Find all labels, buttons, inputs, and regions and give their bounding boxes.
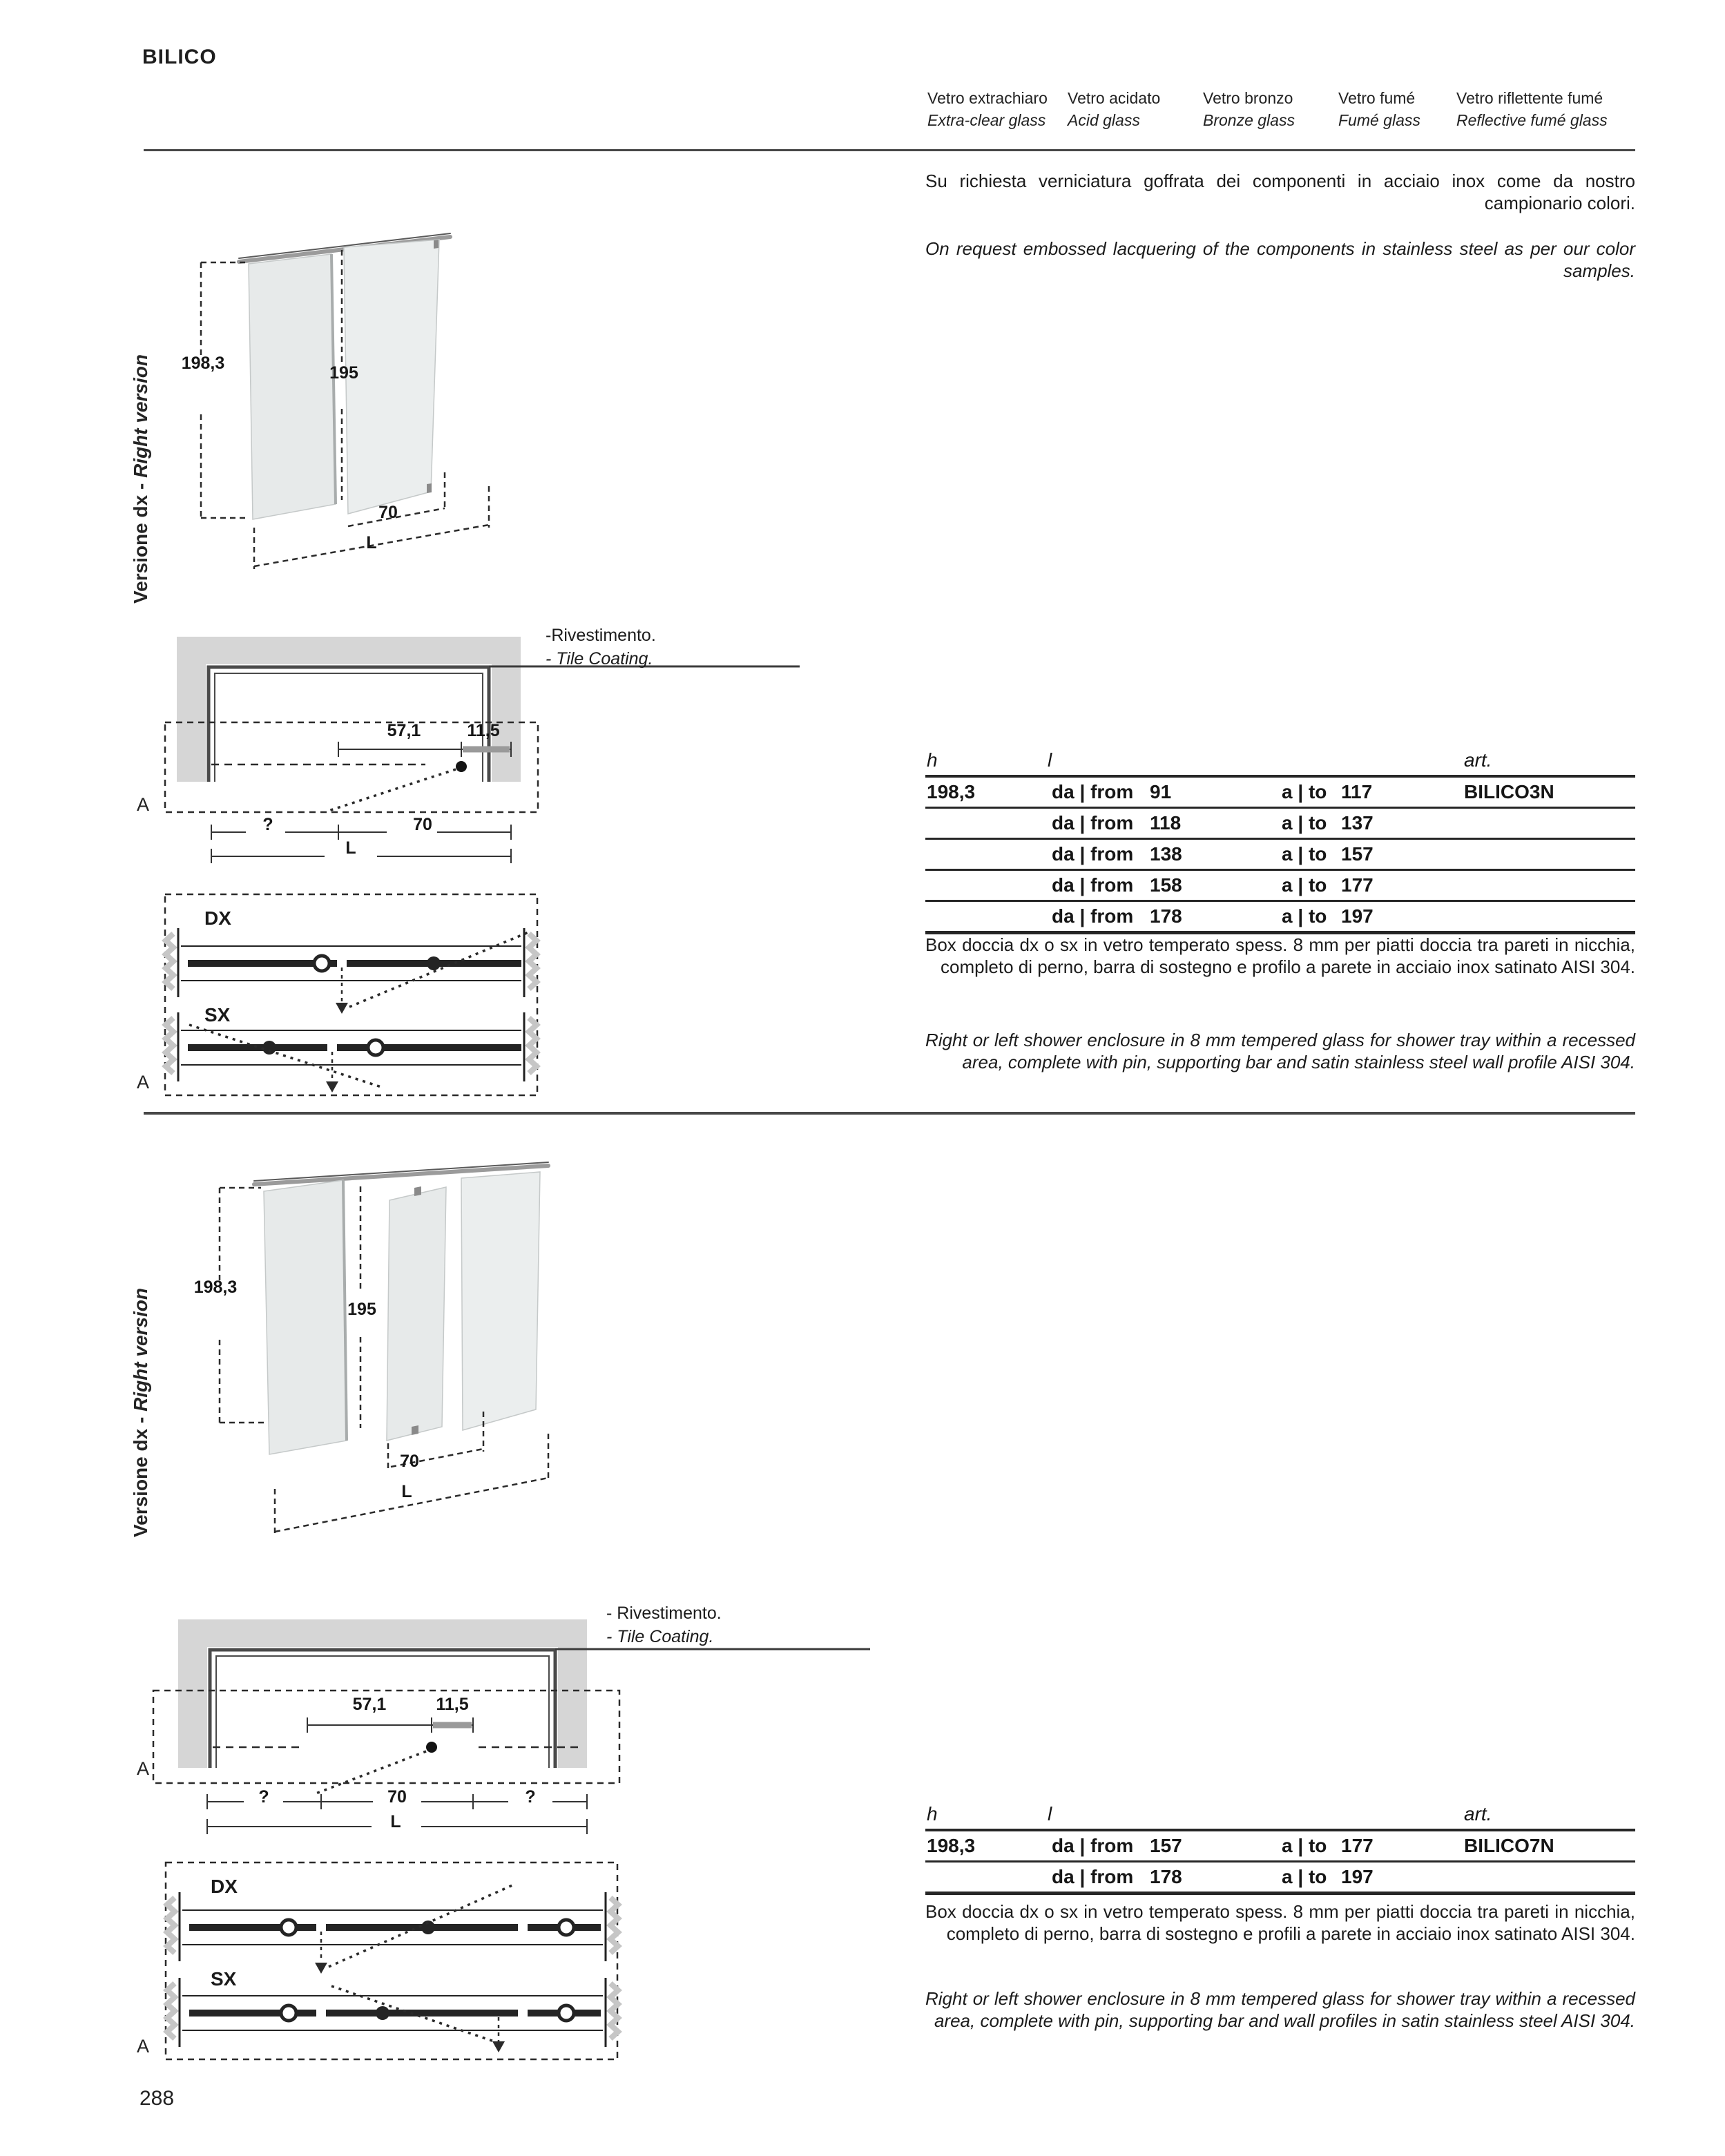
cell-to-value: 117 xyxy=(1341,781,1372,803)
page-number: 288 xyxy=(139,2087,174,2110)
iso2-dim-glass-height: 195 xyxy=(330,1300,394,1320)
cell-art: BILICO3N xyxy=(1464,781,1554,803)
cell-h: 198,3 xyxy=(927,1835,975,1857)
wall-hatch-right xyxy=(529,934,537,989)
pivot-dot xyxy=(427,956,441,970)
pivot-dot xyxy=(456,761,467,772)
plan1-dim-door: 70 xyxy=(394,815,452,835)
description-en-2: Right or left shower enclosure in 8 mm t… xyxy=(925,1987,1635,2032)
table-header-row: h l art. xyxy=(925,744,1635,778)
glass-type-it: Vetro extrachiaro xyxy=(927,89,1048,107)
plan1-dim-pin: 11,5 xyxy=(451,721,516,741)
dx-label: DX xyxy=(211,1876,238,1898)
cell-from-value: 178 xyxy=(1150,905,1182,927)
section-divider xyxy=(144,1112,1635,1115)
iso2-dim-length: L xyxy=(386,1482,427,1502)
plan2-dim-variable-left: ? xyxy=(249,1787,279,1807)
cell-da-from: da | from xyxy=(1052,843,1133,865)
cell-a-to: a | to xyxy=(1282,905,1327,927)
cell-from-value: 178 xyxy=(1150,1866,1182,1888)
door-swing-line xyxy=(189,1025,381,1087)
table-row: da | from 178 a | to 197 xyxy=(925,902,1635,934)
version-label-2: Versione dx - Right version xyxy=(130,1288,152,1537)
wall-hatch-left xyxy=(167,1898,175,1953)
coating-label-it: -Rivestimento. xyxy=(546,626,656,646)
version-label-1: Versione dx - Right version xyxy=(130,354,152,604)
isometric-drawing-2 xyxy=(192,1159,586,1580)
plan2-dim-offset: 57,1 xyxy=(338,1695,401,1715)
arrowhead xyxy=(326,1081,338,1093)
fixing-ring xyxy=(559,2005,574,2021)
iso2-dim-door-width: 70 xyxy=(380,1452,439,1472)
glass-type-it: Vetro riflettente fumé xyxy=(1456,89,1603,107)
zone-label-a: A xyxy=(137,1758,149,1780)
cell-da-from: da | from xyxy=(1052,1866,1133,1888)
isometric-drawing-1 xyxy=(185,229,561,630)
glass-type-acid: Vetro acidato Acid glass xyxy=(1068,87,1160,131)
glass-type-en: Reflective fumé glass xyxy=(1456,109,1608,131)
cell-art: BILICO7N xyxy=(1464,1835,1554,1857)
zone-label-a: A xyxy=(137,794,149,816)
description-en-1: Right or left shower enclosure in 8 mm t… xyxy=(925,1029,1635,1073)
col-header-h: h xyxy=(927,749,938,771)
pivot-dot xyxy=(376,2006,389,2020)
table-row: da | from 178 a | to 197 xyxy=(925,1863,1635,1895)
page-title: BILICO xyxy=(142,46,217,69)
plan-view-1 xyxy=(144,620,810,863)
cell-from-value: 157 xyxy=(1150,1835,1182,1857)
cell-a-to: a | to xyxy=(1282,781,1327,803)
cell-to-value: 177 xyxy=(1341,1835,1374,1857)
iso1-dim-glass-height: 195 xyxy=(312,363,376,383)
intro-paragraph-en: On request embossed lacquering of the co… xyxy=(925,238,1635,282)
table-row: da | from 118 a | to 137 xyxy=(925,809,1635,840)
glass-type-it: Vetro bronzo xyxy=(1203,89,1293,107)
table-row: da | from 138 a | to 157 xyxy=(925,840,1635,871)
cell-da-from: da | from xyxy=(1052,1835,1133,1857)
coating-label-en: - Tile Coating. xyxy=(606,1627,713,1647)
col-header-art: art. xyxy=(1464,1803,1492,1825)
col-header-h: h xyxy=(927,1803,938,1825)
intro-paragraph-it: Su richiesta verniciatura goffrata dei c… xyxy=(925,170,1635,214)
arrowhead xyxy=(315,1963,327,1974)
glass-type-it: Vetro acidato xyxy=(1068,89,1160,107)
iso1-dim-total-height: 198,3 xyxy=(164,354,242,374)
spec-table-bilico7n: h l art. 198,3 da | from 157 a | to 177 … xyxy=(925,1798,1635,1895)
sx-label: SX xyxy=(211,1968,236,1990)
wall-hatch-left xyxy=(167,1983,175,2039)
cell-from-value: 138 xyxy=(1150,843,1182,865)
coating-label-en: - Tile Coating. xyxy=(546,649,653,669)
pivot-dot xyxy=(262,1041,276,1055)
glass-type-bronze: Vetro bronzo Bronze glass xyxy=(1203,87,1295,131)
table-row: 198,3 da | from 91 a | to 117 BILICO3N xyxy=(925,778,1635,809)
cell-to-value: 197 xyxy=(1341,1866,1374,1888)
sx-label: SX xyxy=(204,1004,230,1026)
table-header-row: h l art. xyxy=(925,1798,1635,1831)
tile-coating-band xyxy=(177,637,521,782)
dimension-57-11 xyxy=(338,742,511,757)
glass-type-it: Vetro fumé xyxy=(1338,89,1415,107)
cell-a-to: a | to xyxy=(1282,812,1327,834)
cell-to-value: 157 xyxy=(1341,843,1374,865)
dx-label: DX xyxy=(204,907,231,930)
iso1-dim-door-width: 70 xyxy=(359,503,417,523)
col-header-art: art. xyxy=(1464,749,1492,771)
catalog-page: BILICO Vetro extrachiaro Extra-clear gla… xyxy=(0,0,1725,2156)
pivot-dot xyxy=(426,1742,437,1753)
cell-da-from: da | from xyxy=(1052,781,1133,803)
fixing-ring xyxy=(559,1920,574,1935)
glass-type-fume: Vetro fumé Fumé glass xyxy=(1338,87,1420,131)
glass-type-en: Bronze glass xyxy=(1203,109,1295,131)
spec-table-bilico3n: h l art. 198,3 da | from 91 a | to 117 B… xyxy=(925,744,1635,934)
fixing-ring xyxy=(314,956,329,971)
cell-to-value: 177 xyxy=(1341,874,1374,896)
plan1-dim-variable: ? xyxy=(253,815,283,835)
plan2-dim-length: L xyxy=(375,1812,416,1832)
zone-label-a: A xyxy=(137,2036,149,2057)
col-header-l: l xyxy=(1048,749,1052,771)
coating-label-it: - Rivestimento. xyxy=(606,1604,722,1624)
glass-type-en: Acid glass xyxy=(1068,109,1160,131)
cell-to-value: 137 xyxy=(1341,812,1374,834)
cell-from-value: 158 xyxy=(1150,874,1182,896)
glass-panel-front xyxy=(249,254,336,519)
col-header-l: l xyxy=(1048,1803,1052,1825)
cell-a-to: a | to xyxy=(1282,843,1327,865)
glass-type-en: Extra-clear glass xyxy=(927,109,1048,131)
description-it-2: Box doccia dx o sx in vetro temperato sp… xyxy=(925,1900,1635,1945)
cell-from-value: 118 xyxy=(1150,812,1181,834)
plan2-dim-pin: 11,5 xyxy=(420,1695,485,1715)
fixing-ring xyxy=(368,1040,383,1055)
glass-panel-door xyxy=(387,1186,446,1441)
cell-to-value: 197 xyxy=(1341,905,1374,927)
cell-h: 198,3 xyxy=(927,781,975,803)
zone-label-a: A xyxy=(137,1072,149,1093)
cell-da-from: da | from xyxy=(1052,874,1133,896)
cell-a-to: a | to xyxy=(1282,874,1327,896)
header-divider xyxy=(144,149,1635,151)
fixing-ring xyxy=(281,2005,296,2021)
cell-da-from: da | from xyxy=(1052,905,1133,927)
wall-hatch-left xyxy=(166,934,173,989)
iso1-dim-length: L xyxy=(351,533,392,553)
iso2-dim-total-height: 198,3 xyxy=(177,1278,254,1298)
table-row: da | from 158 a | to 177 xyxy=(925,871,1635,902)
glass-type-reflective-fume: Vetro riflettente fumé Reflective fumé g… xyxy=(1456,87,1608,131)
plan2-dim-variable-right: ? xyxy=(515,1787,546,1807)
version-label-en: Right version xyxy=(130,354,151,478)
plan1-dim-length: L xyxy=(330,838,372,858)
tile-coating-band xyxy=(178,1619,587,1768)
description-it-1: Box doccia dx o sx in vetro temperato sp… xyxy=(925,934,1635,978)
door-swing-line xyxy=(349,931,532,1007)
door-swing-line xyxy=(329,769,456,811)
glass-panel-right xyxy=(461,1172,540,1430)
table-row: 198,3 da | from 157 a | to 177 BILICO7N xyxy=(925,1831,1635,1863)
cell-a-to: a | to xyxy=(1282,1835,1327,1857)
wall-hatch-left xyxy=(166,1018,173,1073)
glass-type-en: Fumé glass xyxy=(1338,109,1420,131)
arrowhead xyxy=(336,1003,348,1014)
version-label-it: Versione dx - xyxy=(130,1412,151,1537)
version-label-it: Versione dx - xyxy=(130,478,151,604)
plan1-dim-offset: 57,1 xyxy=(373,721,435,741)
fixing-ring xyxy=(281,1920,296,1935)
plan2-dim-door: 70 xyxy=(368,1787,426,1807)
dx-row xyxy=(167,1885,618,1974)
cell-from-value: 91 xyxy=(1150,781,1171,803)
cell-da-from: da | from xyxy=(1052,812,1133,834)
wall-hatch-right xyxy=(529,1018,537,1073)
glass-type-extra-clear: Vetro extrachiaro Extra-clear glass xyxy=(927,87,1048,131)
dimension-57-11 xyxy=(307,1717,473,1733)
version-label-en: Right version xyxy=(130,1288,151,1412)
dx-row xyxy=(166,928,537,1014)
cell-a-to: a | to xyxy=(1282,1866,1327,1888)
